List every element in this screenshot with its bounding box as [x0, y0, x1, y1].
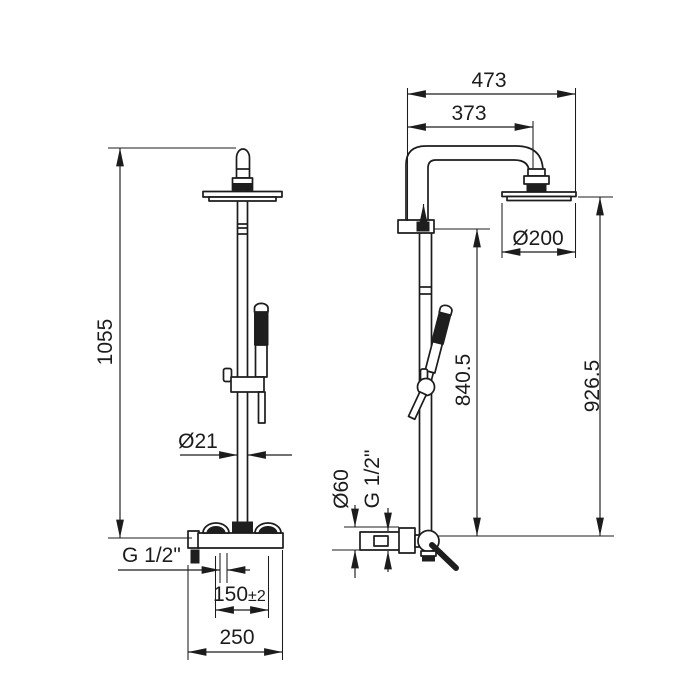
- pipe-base-fitting: [233, 522, 253, 533]
- mixer-valve-side: [360, 528, 456, 568]
- inlet-thread-dimension: G 1/2": [118, 544, 250, 583]
- hand-shower-wand: [259, 392, 266, 423]
- side-view: 473 373 Ø200 840.5 926.5: [330, 69, 614, 578]
- pipe-joint: [238, 224, 248, 234]
- hand-shower-cap: [255, 303, 269, 312]
- outlet-thread-dimension: G 1/2": [361, 450, 388, 572]
- front-view: 1055 Ø21 G 1/2" 150±2 250: [94, 148, 292, 660]
- dim-label-valve-width: 250: [219, 626, 254, 649]
- dim-label-outlet-thread: G 1/2": [361, 450, 384, 509]
- head-height-dimension: 926.5: [578, 197, 613, 536]
- valve-body-side: [360, 532, 400, 550]
- drawing-svg: 1055 Ø21 G 1/2" 150±2 250: [0, 0, 700, 700]
- hand-shower-handle: [255, 312, 269, 345]
- arm-height-dimension: 840.5: [452, 229, 477, 536]
- pipe-diameter-dimension: Ø21: [178, 430, 292, 455]
- head-diameter-dimension: Ø200: [502, 203, 576, 258]
- dim-label-pipe-diameter: Ø21: [178, 430, 218, 453]
- arm-connector: [528, 169, 545, 176]
- column-top-cap: [237, 149, 250, 178]
- dim-label-escutcheon: Ø60: [330, 469, 353, 509]
- shower-head-side: [502, 192, 576, 201]
- dim-label-1055: 1055: [94, 319, 117, 366]
- inlet-spacing-dimension: 150±2: [213, 556, 269, 618]
- shower-head-front: [203, 192, 282, 202]
- dim-label-inlet-thread: G 1/2": [122, 544, 181, 567]
- dim-label-926-5: 926.5: [581, 360, 604, 413]
- hand-shower-body: [256, 345, 268, 377]
- dim-label-inlet-spacing: 150±2: [213, 583, 266, 606]
- column-pipe: [238, 190, 248, 523]
- wall-bracket: [398, 220, 434, 233]
- shower-system-technical-drawing: 1055 Ø21 G 1/2" 150±2 250: [0, 0, 700, 700]
- dim-label-840-5: 840.5: [452, 354, 475, 407]
- dim-label-473: 473: [471, 69, 506, 92]
- height-dimension: 1055: [94, 148, 236, 538]
- valve-body-front: [198, 533, 283, 548]
- dim-label-373: 373: [451, 102, 486, 125]
- valve-escutcheon: [399, 528, 415, 553]
- dim-label-head-diameter: Ø200: [512, 227, 563, 250]
- shower-column-front: [188, 149, 283, 563]
- arm-projection-dimension: 373: [408, 102, 534, 168]
- shower-arm: [406, 146, 549, 222]
- hose-outlet: [421, 551, 436, 556]
- hand-shower-front: [255, 303, 269, 377]
